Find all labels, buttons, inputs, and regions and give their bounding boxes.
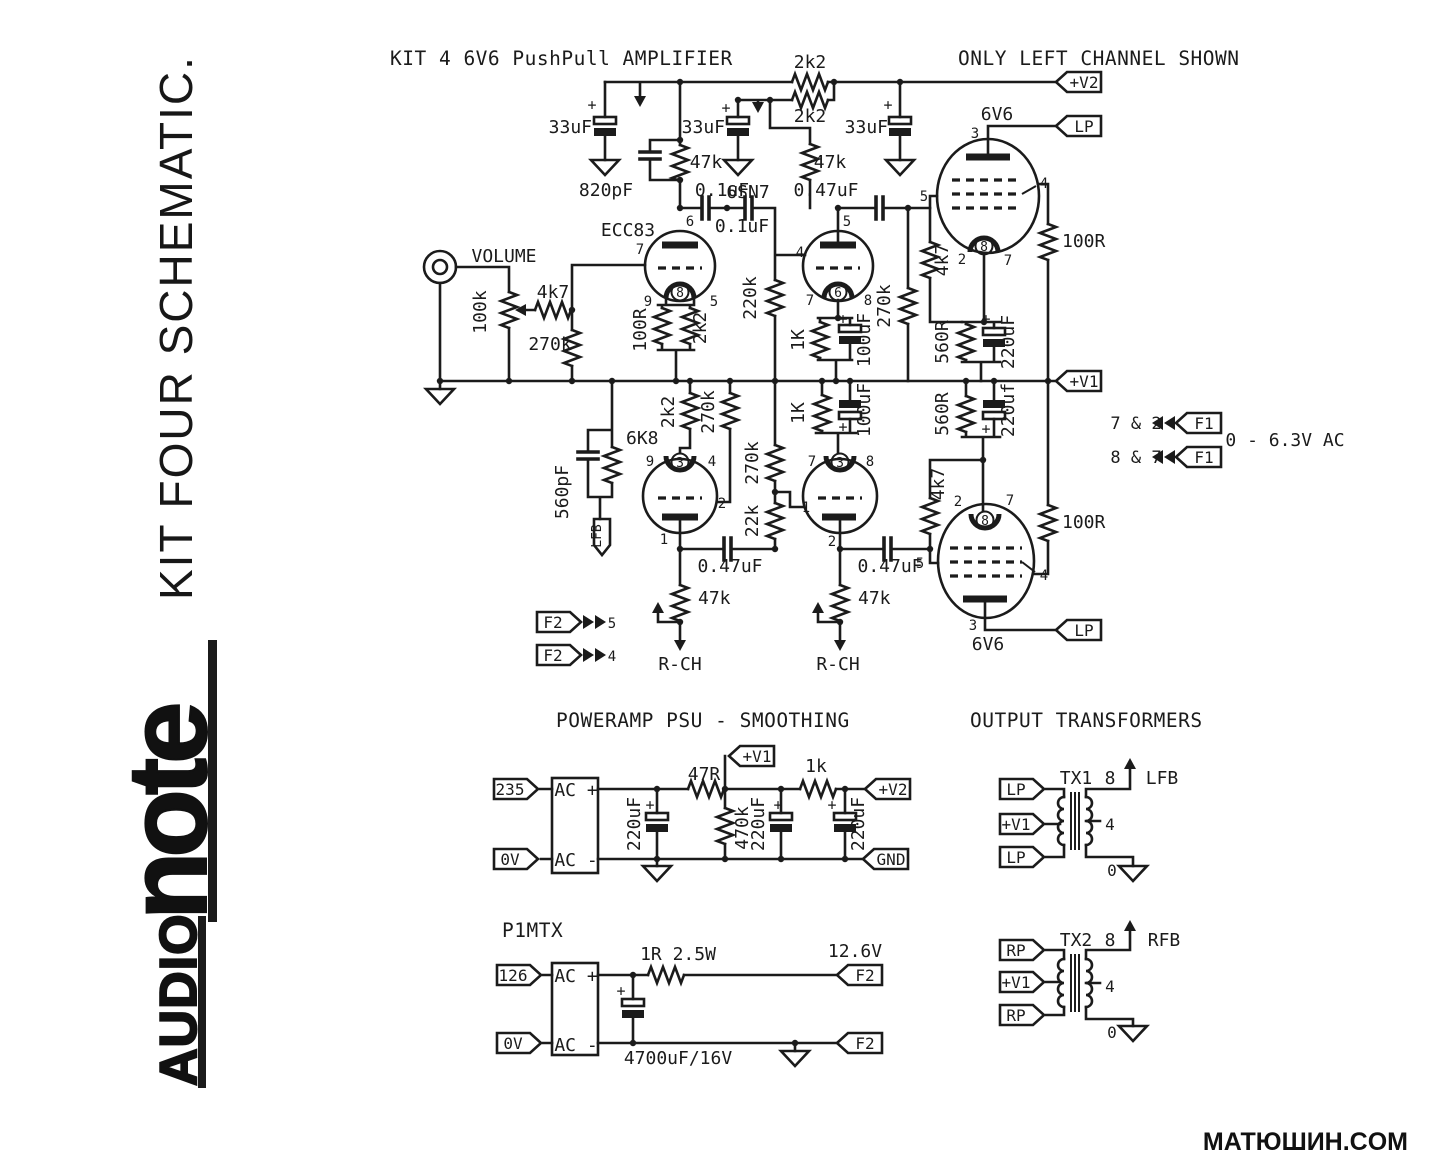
junction-dot: [778, 786, 784, 792]
component-label: AC -: [554, 1035, 597, 1056]
flag-v1-psu: +V1: [729, 746, 774, 766]
junction-dot: [837, 619, 843, 625]
component-label: 5: [843, 214, 851, 230]
component-label: 100k: [470, 290, 491, 334]
flag-label: +V1: [1002, 815, 1031, 834]
component-label: AC +: [554, 780, 598, 801]
component-label: 8: [980, 240, 988, 255]
flag-label: F1: [1194, 448, 1213, 467]
junction-dot: [677, 137, 683, 143]
junction-dot: [905, 205, 911, 211]
component-label: 4: [1105, 977, 1115, 996]
flag-label: 0V: [503, 1034, 523, 1053]
component-label: 560pF: [552, 465, 573, 519]
chevron-right-icon: [595, 648, 606, 662]
component-label: 4: [1040, 568, 1048, 584]
component-label: 0 - 6.3V AC: [1225, 430, 1344, 451]
component-label: +: [827, 796, 836, 814]
junction-dot: [772, 378, 778, 384]
flag-lp-tx1-a: LP: [1000, 779, 1044, 799]
flag-label: +V1: [743, 747, 772, 766]
component-label: 5: [916, 556, 924, 572]
component-label: 47R: [688, 764, 721, 785]
vertical-title: KIT FOUR SCHEMATIC.: [150, 55, 202, 600]
junction-dot: [981, 319, 987, 325]
tube-label-ecc83: ECC83: [601, 220, 655, 241]
junction-dot: [897, 79, 903, 85]
component-label: 7: [1006, 493, 1014, 509]
junction-dot: [506, 378, 512, 384]
psu-title: POWERAMP PSU - SMOOTHING: [556, 709, 850, 732]
component-label: 7: [636, 242, 644, 258]
component-label: 1K: [788, 329, 809, 351]
component-label: 100R: [1062, 512, 1106, 533]
component-label: 7: [806, 293, 814, 309]
junction-dot: [673, 378, 679, 384]
component-label: 0.47uF: [857, 556, 922, 577]
component-label: 270k: [528, 334, 572, 355]
flag-lp-tx1-b: LP: [1000, 847, 1044, 867]
junction-dot: [842, 786, 848, 792]
component-label: 1K: [788, 402, 809, 424]
junction-dot: [677, 546, 683, 552]
component-label: 22k: [742, 505, 763, 538]
flag-label: LP: [1074, 117, 1093, 136]
arrow-up-icon: [1124, 758, 1136, 769]
component-label: 0.47uF: [697, 556, 762, 577]
component-label: 47k: [698, 588, 731, 609]
chevron-right-icon: [583, 615, 594, 629]
component-label: 7: [808, 454, 816, 470]
flag-v2-psu: +V2: [865, 779, 910, 799]
junction-dot: [722, 786, 728, 792]
component-label: R-CH: [816, 654, 859, 675]
arrow-down-icon: [834, 640, 846, 651]
component-label: 2k2: [794, 52, 827, 73]
component-label: 4k7: [928, 468, 949, 501]
resistors: [501, 74, 1056, 983]
component-label: +: [981, 310, 990, 328]
flag-f1-b: F1: [1176, 447, 1221, 467]
component-label: 8: [864, 293, 872, 309]
component-label: 9: [644, 294, 652, 310]
junction-dot: [991, 378, 997, 384]
junction-dot: [654, 856, 660, 862]
flag-f1-a: F1: [1176, 413, 1221, 433]
junction-dot: [980, 457, 986, 463]
junction-dot: [772, 546, 778, 552]
component-label: 6: [686, 214, 694, 230]
component-label: 3: [969, 618, 977, 634]
component-label: 820pF: [579, 180, 633, 201]
flag-label: F2: [855, 966, 874, 985]
junction-dot: [772, 489, 778, 495]
component-label: 0.47uF: [793, 180, 858, 201]
component-label: 4: [1105, 815, 1115, 834]
flag-rp-tx2-b: RP: [1000, 1005, 1044, 1025]
flag-0v-heater: 0V: [497, 1033, 541, 1053]
component-label: 560R: [932, 320, 953, 364]
chevron-right-icon: [595, 615, 606, 629]
component-label: 270k: [698, 390, 719, 434]
component-label: 1: [802, 500, 810, 516]
component-label: +: [981, 420, 990, 438]
component-label: 9: [646, 454, 654, 470]
junction-dot: [630, 972, 636, 978]
component-label: 5: [920, 189, 928, 205]
tube-label-6v6-top: 6V6: [981, 104, 1014, 125]
chevron-left-icon: [1164, 416, 1175, 430]
flag-f2-5: F2: [537, 612, 581, 632]
junction-dot: [778, 856, 784, 862]
component-label: 560R: [932, 392, 953, 436]
chevron-left-icon: [1164, 450, 1175, 464]
component-label: 47k: [814, 152, 847, 173]
component-label: 6: [834, 286, 842, 301]
flag-label: 0V: [500, 850, 520, 869]
component-label: +: [838, 418, 847, 436]
junction-dot: [847, 378, 853, 384]
junction-dot: [837, 546, 843, 552]
tube-label-6v6-bottom: 6V6: [972, 634, 1005, 655]
component-label: 47k: [690, 152, 723, 173]
junction-dot: [630, 1040, 636, 1046]
junction-dot: [835, 315, 841, 321]
component-label: 7: [1004, 253, 1012, 269]
component-label: 7 & 2: [1110, 414, 1161, 434]
schematic-page: KIT FOUR SCHEMATIC. note AUDIO KIT 4 6V6…: [0, 0, 1439, 1170]
component-label: 4k7: [932, 244, 953, 277]
component-label: R-CH: [658, 654, 701, 675]
flag-v1-tx2: +V1: [1000, 972, 1044, 992]
component-label: +: [721, 99, 730, 117]
volume-label: VOLUME: [471, 246, 536, 267]
flag-rp-tx2-a: RP: [1000, 940, 1044, 960]
component-label: 220k: [740, 276, 761, 320]
arrow-down-icon: [634, 96, 646, 107]
junction-dot: [767, 97, 773, 103]
tube-6v6-top: [937, 139, 1039, 255]
component-label: 4: [608, 649, 616, 665]
component-label: 220uF: [848, 797, 869, 851]
tube-label-6sn7: 6SN7: [726, 182, 769, 203]
flag-v1-plus: +V1: [1056, 371, 1101, 391]
junction-dot: [792, 1040, 798, 1046]
component-label: 5: [608, 616, 616, 632]
component-label: 6K8: [626, 428, 659, 449]
flag-lp-bottom: LP: [1056, 620, 1101, 640]
flag-f2-4: F2: [537, 645, 581, 665]
arrow-down-icon: [674, 640, 686, 651]
component-label: 5: [710, 294, 718, 310]
labels-layer: 2k22k233uF+820pF47k0.1uF0.1uF6ECC8379581…: [470, 52, 1345, 1069]
component-label: 100uF: [854, 383, 875, 437]
component-label: 2: [958, 252, 966, 268]
component-label: 4700uF/16V: [624, 1048, 733, 1069]
transformers: [1058, 793, 1092, 1011]
junction-dot: [569, 307, 575, 313]
component-label: 220uF: [748, 797, 769, 851]
flag-126: 126: [497, 965, 541, 985]
component-label: +: [773, 796, 782, 814]
junction-dot: [963, 378, 969, 384]
component-label: AC +: [554, 966, 598, 987]
transformer-label-tx1: TX1: [1060, 768, 1093, 789]
component-label: AC -: [554, 850, 597, 871]
junction-dot: [677, 79, 683, 85]
arrow-down-icon: [752, 102, 764, 113]
flag-label: F2: [543, 613, 562, 632]
component-label: 2k2: [690, 312, 711, 345]
flag-label: 126: [499, 966, 528, 985]
flag-label: +V1: [1002, 973, 1031, 992]
component-label: 12.6V: [828, 941, 882, 962]
component-label: 220uF: [624, 797, 645, 851]
component-label: 4k7: [537, 282, 570, 303]
component-label: 4: [708, 454, 716, 470]
component-label: 2: [828, 534, 836, 550]
flag-f2-heater-a: F2: [837, 965, 882, 985]
junction-dot: [735, 97, 741, 103]
component-label: +: [645, 796, 654, 814]
component-label: LFB: [590, 524, 605, 548]
component-label: 270k: [874, 284, 895, 328]
component-label: 1k: [805, 756, 827, 777]
logo-underline-audio: [198, 916, 206, 1088]
component-label: +: [587, 96, 596, 114]
component-label: RFB: [1148, 930, 1181, 951]
flag-label: GND: [877, 850, 906, 869]
flag-label: +V2: [1070, 73, 1099, 92]
junction-dot: [724, 205, 730, 211]
flag-v1-tx1: +V1: [1000, 814, 1044, 834]
component-label: 1R 2.5W: [640, 944, 716, 965]
junction-dot: [819, 378, 825, 384]
junction-dot: [842, 856, 848, 862]
component-label: 3: [971, 126, 979, 142]
schematic-canvas: KIT FOUR SCHEMATIC. note AUDIO KIT 4 6V6…: [0, 0, 1439, 1170]
component-label: 0: [1107, 861, 1117, 880]
junction-dot: [437, 378, 443, 384]
component-label: 0.1uF: [715, 216, 769, 237]
arrow-up-icon: [652, 602, 664, 613]
chevron-right-icon: [583, 648, 594, 662]
component-label: 100uF: [854, 313, 875, 367]
junction-dot: [927, 546, 933, 552]
arrow-up-icon: [1124, 920, 1136, 931]
component-label: 8: [676, 286, 684, 301]
output-title: OUTPUT TRANSFORMERS: [970, 709, 1203, 732]
flag-label: 235: [496, 780, 525, 799]
junction-dot: [609, 378, 615, 384]
junction-dot: [831, 79, 837, 85]
component-label: +: [883, 96, 892, 114]
component-label: 1: [660, 532, 668, 548]
flag-235: 235: [494, 779, 538, 799]
flag-label: LP: [1006, 848, 1025, 867]
brand-block: KIT FOUR SCHEMATIC. note AUDIO: [105, 55, 230, 1088]
component-label: 220uf: [998, 383, 1019, 437]
flag-f2-heater-b: F2: [837, 1033, 882, 1053]
flag-gnd: GND: [863, 849, 908, 869]
junction-dot: [569, 378, 575, 384]
logo-underline-note: [208, 640, 217, 922]
component-label: +: [616, 982, 625, 1000]
component-label: 8: [1105, 768, 1116, 789]
junction-dot: [1045, 378, 1051, 384]
junction-dot: [677, 619, 683, 625]
flag-label: +V2: [879, 780, 908, 799]
component-label: 4: [1040, 176, 1048, 192]
flag-label: F2: [543, 646, 562, 665]
component-label: 270k: [742, 441, 763, 485]
flag-v2-plus: +V2: [1056, 72, 1101, 92]
component-label: 100R: [630, 308, 651, 352]
component-label: 2k2: [794, 106, 827, 127]
component-label: 100R: [1062, 231, 1106, 252]
flag-0v-psu: 0V: [494, 849, 538, 869]
component-label: 8: [1105, 930, 1116, 951]
flag-lp-top: LP: [1056, 116, 1101, 136]
flag-label: RP: [1006, 1006, 1025, 1025]
watermark: МАТЮШИН.COM: [1203, 1128, 1408, 1156]
arrow-up-icon: [812, 602, 824, 613]
component-label: 33uF: [682, 117, 725, 138]
component-label: 4: [796, 245, 804, 261]
channel-note: ONLY LEFT CHANNEL SHOWN: [958, 47, 1240, 70]
component-label: 33uF: [549, 117, 592, 138]
component-label: 2: [718, 496, 726, 512]
component-label: 2k2: [658, 396, 679, 429]
junction-dot: [677, 177, 683, 183]
component-label: 8 & 7: [1110, 448, 1161, 468]
component-label: 3: [676, 456, 684, 471]
junction-dot: [835, 205, 841, 211]
component-label: 8: [981, 514, 989, 529]
component-label: 47k: [858, 588, 891, 609]
main-title: KIT 4 6V6 PushPull AMPLIFIER: [390, 47, 733, 70]
flag-label: +V1: [1070, 372, 1099, 391]
component-label: 220uF: [998, 315, 1019, 369]
junction-dot: [687, 378, 693, 384]
component-label: LFB: [1146, 768, 1179, 789]
component-label: 2: [954, 494, 962, 510]
component-label: 0: [1107, 1023, 1117, 1042]
component-label: 3: [836, 456, 844, 471]
flag-label: F1: [1194, 414, 1213, 433]
input-jack: [424, 251, 456, 283]
junction-dot: [833, 378, 839, 384]
component-label: 33uF: [845, 117, 888, 138]
junction-dot: [722, 856, 728, 862]
junction-dot: [654, 786, 660, 792]
flag-label: LP: [1006, 780, 1025, 799]
component-label: 8: [866, 454, 874, 470]
flag-label: RP: [1006, 941, 1025, 960]
heater-psu-title: P1MTX: [502, 919, 563, 942]
junction-dot: [727, 378, 733, 384]
flag-label: LP: [1074, 621, 1093, 640]
junction-dot: [677, 205, 683, 211]
flag-label: F2: [855, 1034, 874, 1053]
transformer-label-tx2: TX2: [1060, 930, 1093, 951]
